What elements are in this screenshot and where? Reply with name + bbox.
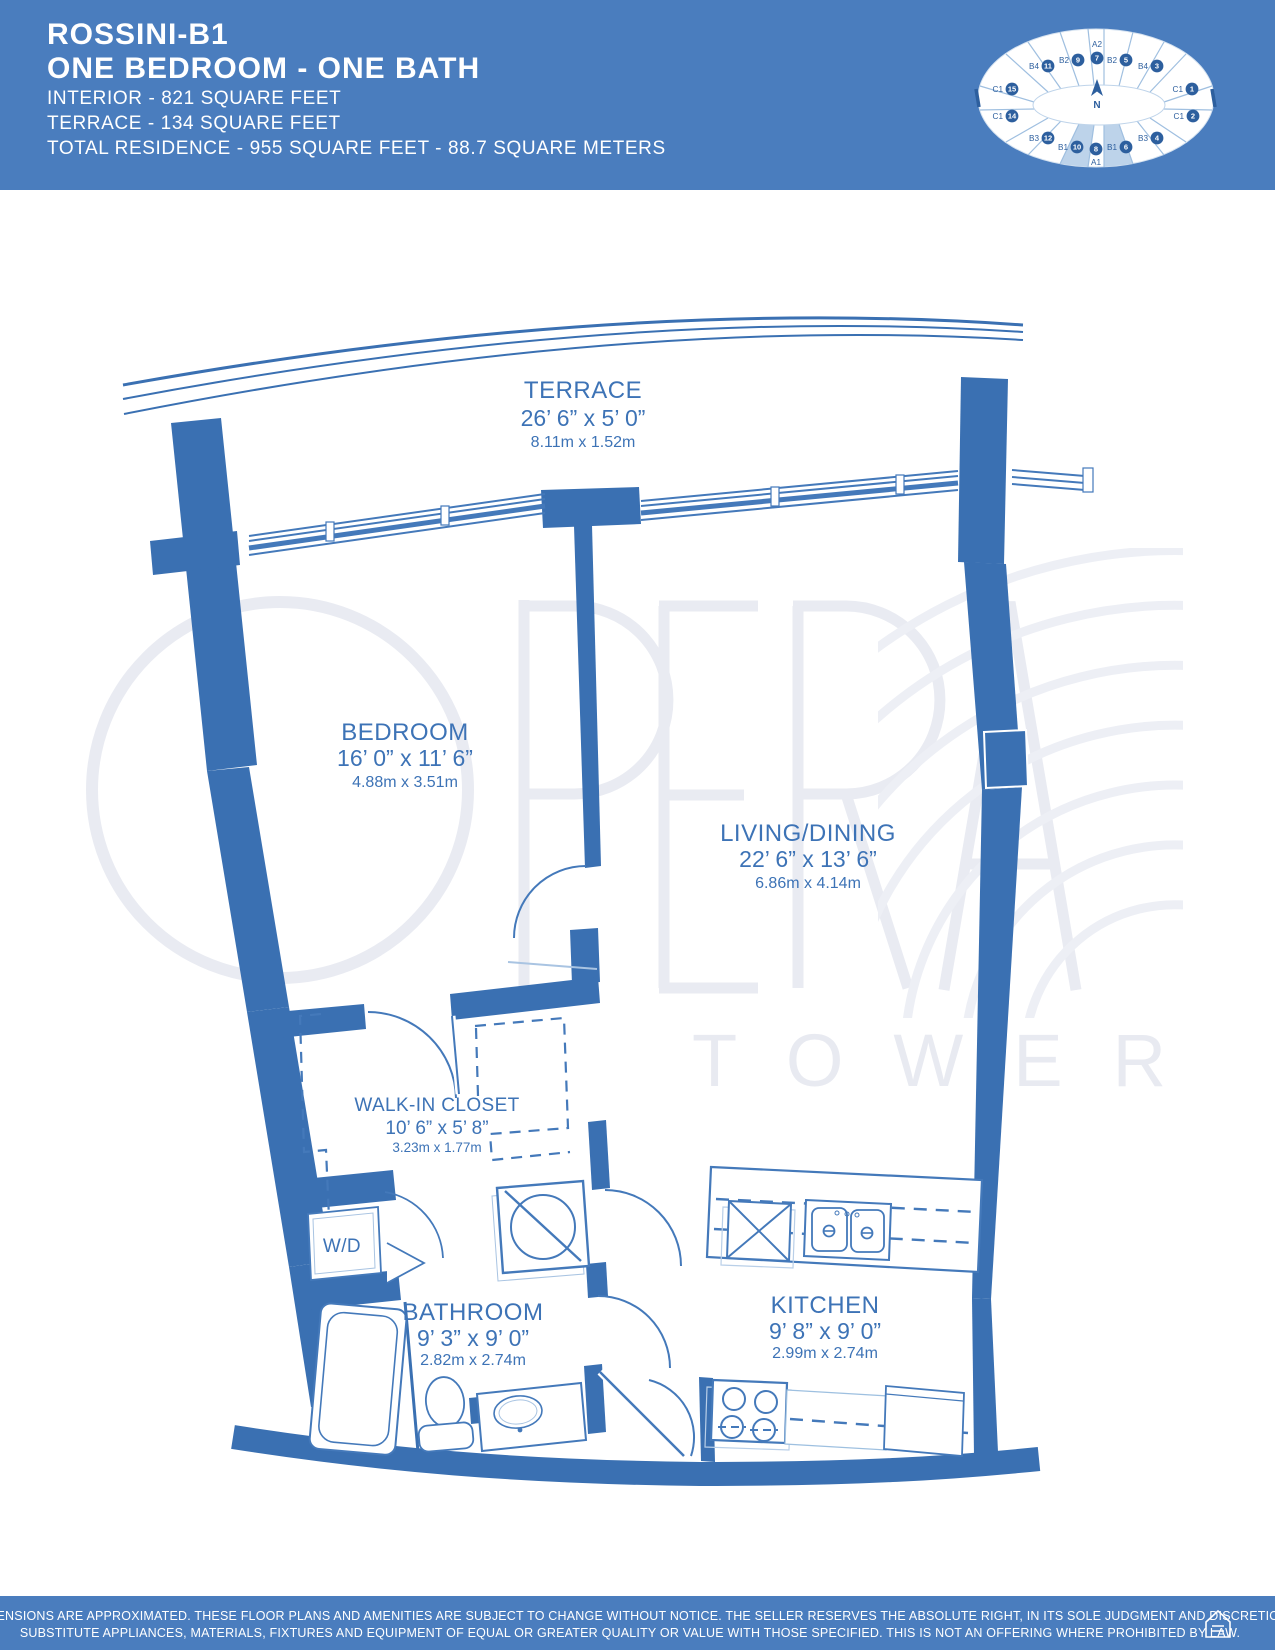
svg-text:WALK-IN CLOSET: WALK-IN CLOSET	[354, 1095, 519, 1116]
footer-bar: ALL DIMENSIONS ARE APPROXIMATED. THESE F…	[0, 1596, 1275, 1650]
svg-text:9’ 3” x 9’ 0”: 9’ 3” x 9’ 0”	[417, 1325, 529, 1351]
stat-interior: INTERIOR - 821 SQUARE FEET	[47, 88, 341, 109]
hall-door-arc	[598, 1296, 670, 1368]
svg-text:12: 12	[1044, 134, 1052, 143]
svg-text:B2: B2	[1059, 56, 1069, 65]
washer-dryer-label: W/D	[323, 1236, 361, 1257]
svg-text:B3: B3	[1029, 134, 1039, 143]
vanity-faucet	[518, 1428, 523, 1433]
watermark-fan-swirls	[670, 551, 1261, 1055]
svg-text:B4: B4	[1138, 62, 1148, 71]
wall-bedroom-south-left	[277, 1004, 366, 1038]
room-label-terrace: TERRACE 26’ 6” x 5’ 0” 8.11m x 1.52m	[521, 377, 646, 451]
svg-text:15: 15	[1008, 85, 1016, 94]
svg-text:22’ 6” x 13’ 6”: 22’ 6” x 13’ 6”	[739, 846, 877, 872]
svg-text:3.23m x 1.77m: 3.23m x 1.77m	[392, 1140, 481, 1155]
footer-background	[0, 1596, 1275, 1650]
svg-text:A1: A1	[1091, 158, 1101, 167]
refrigerator	[884, 1386, 964, 1456]
doors	[368, 866, 694, 1456]
svg-text:5: 5	[1124, 56, 1128, 65]
washer-dryer: W/D	[308, 1207, 381, 1280]
toilet-bowl	[423, 1375, 467, 1429]
svg-text:9: 9	[1076, 56, 1080, 65]
bathroom-door-arc	[605, 1190, 681, 1266]
floor-plan-canvas: ROSSINI-B1 ONE BEDROOM - ONE BATH INTERI…	[0, 0, 1275, 1650]
svg-text:3: 3	[1155, 62, 1159, 71]
svg-text:B1: B1	[1107, 143, 1117, 152]
wall-west-bedroom	[207, 767, 289, 1012]
svg-text:14: 14	[1008, 112, 1017, 121]
wd-door-leaf	[387, 1243, 424, 1283]
svg-text:10: 10	[1073, 143, 1081, 152]
entry-door-leaf	[600, 1372, 684, 1456]
svg-text:C1: C1	[1174, 112, 1185, 121]
wall-hall-jamb-1	[588, 1120, 610, 1190]
svg-text:26’ 6” x 5’ 0”: 26’ 6” x 5’ 0”	[521, 405, 646, 431]
stat-total: TOTAL RESIDENCE - 955 SQUARE FEET - 88.7…	[47, 138, 666, 159]
svg-text:B2: B2	[1107, 56, 1117, 65]
svg-text:LIVING/DINING: LIVING/DINING	[720, 820, 896, 847]
svg-text:A2: A2	[1092, 40, 1102, 49]
disclaimer-line-1: ALL DIMENSIONS ARE APPROXIMATED. THESE F…	[0, 1609, 1275, 1623]
svg-text:1: 1	[1190, 85, 1194, 94]
key-plan: N B4 11 B2 9 A2 7 B2 5	[976, 29, 1215, 167]
wall-left-column	[171, 418, 257, 771]
svg-text:6: 6	[1124, 143, 1128, 152]
plan-name: ROSSINI-B1	[47, 18, 229, 51]
wall-bedroom-divider	[574, 525, 601, 868]
svg-text:BATHROOM: BATHROOM	[403, 1299, 544, 1326]
svg-text:9’ 8” x 9’ 0”: 9’ 8” x 9’ 0”	[769, 1318, 881, 1344]
room-label-kitchen: KITCHEN 9’ 8” x 9’ 0” 2.99m x 2.74m	[769, 1292, 881, 1362]
svg-text:7: 7	[1095, 54, 1099, 63]
wall-east-kitchen	[972, 1298, 998, 1456]
vanity-counter	[477, 1383, 586, 1451]
room-label-bathroom: BATHROOM 9’ 3” x 9’ 0” 2.82m x 2.74m	[403, 1299, 544, 1369]
svg-text:C1: C1	[993, 85, 1004, 94]
svg-text:TERRACE: TERRACE	[524, 377, 642, 404]
svg-text:C1: C1	[1173, 85, 1184, 94]
bathtub	[309, 1303, 407, 1456]
floor-plan-page: ROSSINI-B1 ONE BEDROOM - ONE BATH INTERI…	[0, 0, 1275, 1650]
plan-subtitle: ONE BEDROOM - ONE BATH	[47, 52, 480, 85]
room-label-walk-in-closet: WALK-IN CLOSET 10’ 6” x 5’ 8” 3.23m x 1.…	[354, 1095, 519, 1155]
svg-text:2.99m x 2.74m: 2.99m x 2.74m	[772, 1345, 878, 1362]
column-marker-east	[984, 730, 1028, 788]
wall-hall-jamb-2	[586, 1262, 608, 1298]
svg-text:8: 8	[1094, 145, 1098, 154]
svg-text:B4: B4	[1029, 62, 1039, 71]
stat-terrace: TERRACE - 134 SQUARE FEET	[47, 113, 341, 134]
svg-text:8.11m x 1.52m: 8.11m x 1.52m	[531, 434, 636, 451]
svg-text:4.88m x 3.51m: 4.88m x 3.51m	[352, 774, 458, 791]
watermark-tower: TOWER	[692, 1019, 1216, 1102]
disclaimer-line-2: SUBSTITUTE APPLIANCES, MATERIALS, FIXTUR…	[20, 1626, 1240, 1640]
svg-text:2: 2	[1191, 112, 1195, 121]
toilet-tank	[418, 1422, 474, 1453]
wall-right-column	[958, 377, 1008, 564]
svg-text:6.86m x 4.14m: 6.86m x 4.14m	[755, 875, 861, 892]
north-label: N	[1093, 100, 1100, 111]
wall-window-block	[541, 487, 641, 528]
svg-text:C1: C1	[993, 112, 1004, 121]
svg-text:B3: B3	[1138, 134, 1148, 143]
svg-text:B1: B1	[1058, 143, 1068, 152]
svg-text:2.82m x 2.74m: 2.82m x 2.74m	[420, 1352, 526, 1369]
closet-door-arc	[368, 1012, 456, 1098]
svg-text:16’ 0” x 11’ 6”: 16’ 0” x 11’ 6”	[337, 745, 473, 771]
wall-divider-stub	[570, 928, 600, 984]
svg-text:BEDROOM: BEDROOM	[341, 719, 469, 746]
svg-text:11: 11	[1044, 62, 1052, 71]
svg-text:KITCHEN: KITCHEN	[771, 1292, 880, 1319]
svg-text:10’ 6” x 5’ 8”: 10’ 6” x 5’ 8”	[385, 1118, 488, 1139]
room-label-bedroom: BEDROOM 16’ 0” x 11’ 6” 4.88m x 3.51m	[337, 719, 473, 791]
